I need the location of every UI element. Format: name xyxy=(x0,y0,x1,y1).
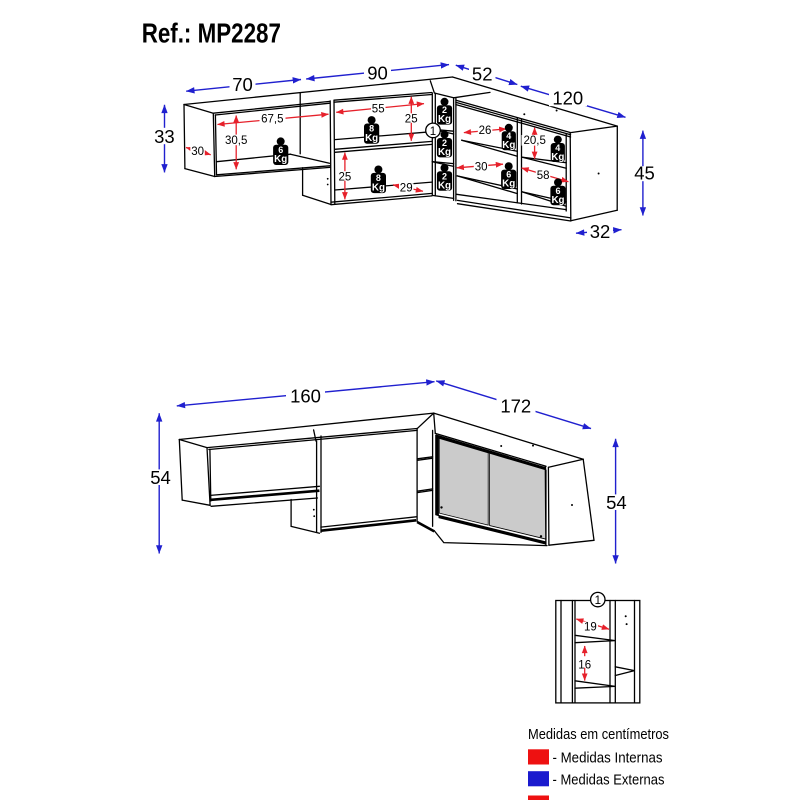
svg-text:Kg: Kg xyxy=(274,154,287,165)
svg-text:- Medidas Externas: - Medidas Externas xyxy=(553,772,665,788)
svg-text:Kg: Kg xyxy=(551,152,564,163)
svg-text:30: 30 xyxy=(191,146,204,158)
svg-text:67,5: 67,5 xyxy=(261,113,283,125)
svg-text:1: 1 xyxy=(595,595,601,607)
svg-text:Ref.: MP2287: Ref.: MP2287 xyxy=(142,18,281,49)
svg-text:Kg: Kg xyxy=(438,180,451,191)
svg-text:Kg: Kg xyxy=(372,182,385,193)
svg-text:45: 45 xyxy=(634,162,655,183)
svg-text:120: 120 xyxy=(552,88,583,109)
svg-text:160: 160 xyxy=(290,386,321,407)
svg-text:Kg: Kg xyxy=(502,179,515,190)
svg-text:30: 30 xyxy=(475,162,488,174)
svg-text:29: 29 xyxy=(400,183,413,195)
svg-text:55: 55 xyxy=(372,104,385,116)
svg-text:26: 26 xyxy=(479,125,492,137)
svg-text:Kg: Kg xyxy=(438,114,451,125)
svg-text:Kg: Kg xyxy=(502,140,515,151)
svg-text:54: 54 xyxy=(150,467,171,488)
svg-text:25: 25 xyxy=(405,114,418,126)
svg-text:Kg: Kg xyxy=(438,147,451,158)
svg-text:20,5: 20,5 xyxy=(524,135,546,147)
svg-text:- Medidas Internas: - Medidas Internas xyxy=(553,751,663,767)
svg-text:90: 90 xyxy=(367,63,388,84)
svg-text:30,5: 30,5 xyxy=(225,135,247,147)
svg-text:1: 1 xyxy=(430,126,436,138)
svg-text:19: 19 xyxy=(584,621,597,633)
svg-text:33: 33 xyxy=(154,126,175,147)
svg-text:Kg: Kg xyxy=(551,195,564,206)
svg-text:25: 25 xyxy=(339,171,352,183)
svg-text:Kg: Kg xyxy=(365,133,378,144)
svg-text:Medidas em centímetros: Medidas em centímetros xyxy=(528,727,669,743)
svg-text:58: 58 xyxy=(537,170,550,182)
svg-text:70: 70 xyxy=(232,74,253,95)
svg-text:172: 172 xyxy=(500,395,531,416)
svg-text:16: 16 xyxy=(578,660,591,672)
svg-text:54: 54 xyxy=(606,492,627,513)
svg-text:52: 52 xyxy=(472,64,493,85)
svg-text:32: 32 xyxy=(590,221,611,242)
